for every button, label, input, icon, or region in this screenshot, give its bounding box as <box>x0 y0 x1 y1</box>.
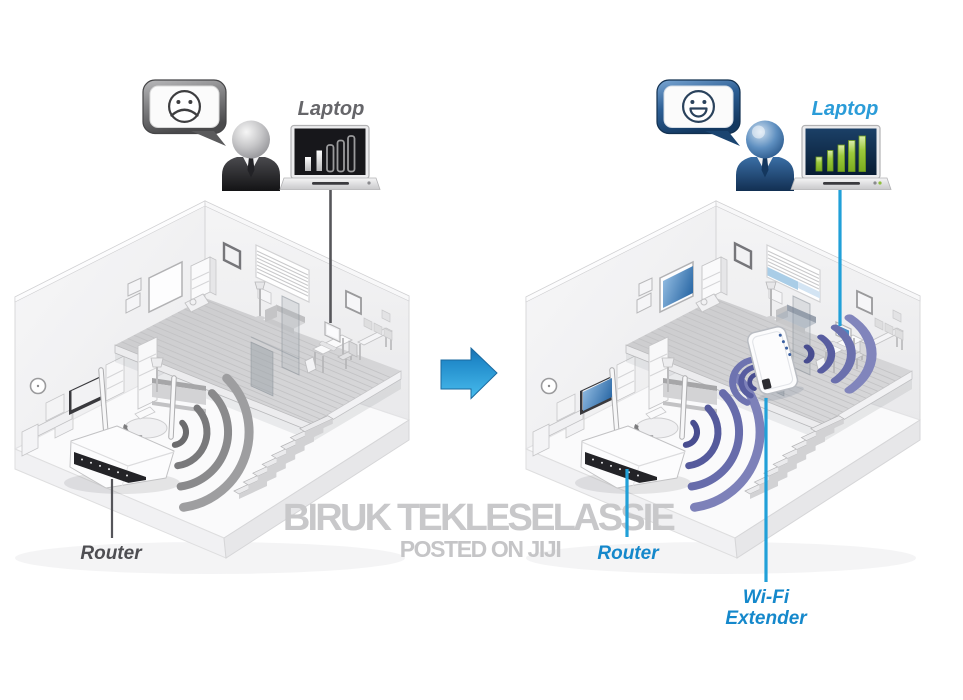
svg-text:Wi-Fi: Wi-Fi <box>743 587 790 608</box>
svg-text:Laptop: Laptop <box>812 98 879 120</box>
svg-text:Router: Router <box>80 543 143 564</box>
svg-text:Laptop: Laptop <box>298 98 365 120</box>
svg-text:BIRUK TEKLESELASSIE: BIRUK TEKLESELASSIE <box>283 497 675 539</box>
svg-text:Extender: Extender <box>725 608 808 629</box>
svg-text:Router: Router <box>597 543 660 564</box>
svg-text:POSTED ON JIJI: POSTED ON JIJI <box>400 536 561 562</box>
